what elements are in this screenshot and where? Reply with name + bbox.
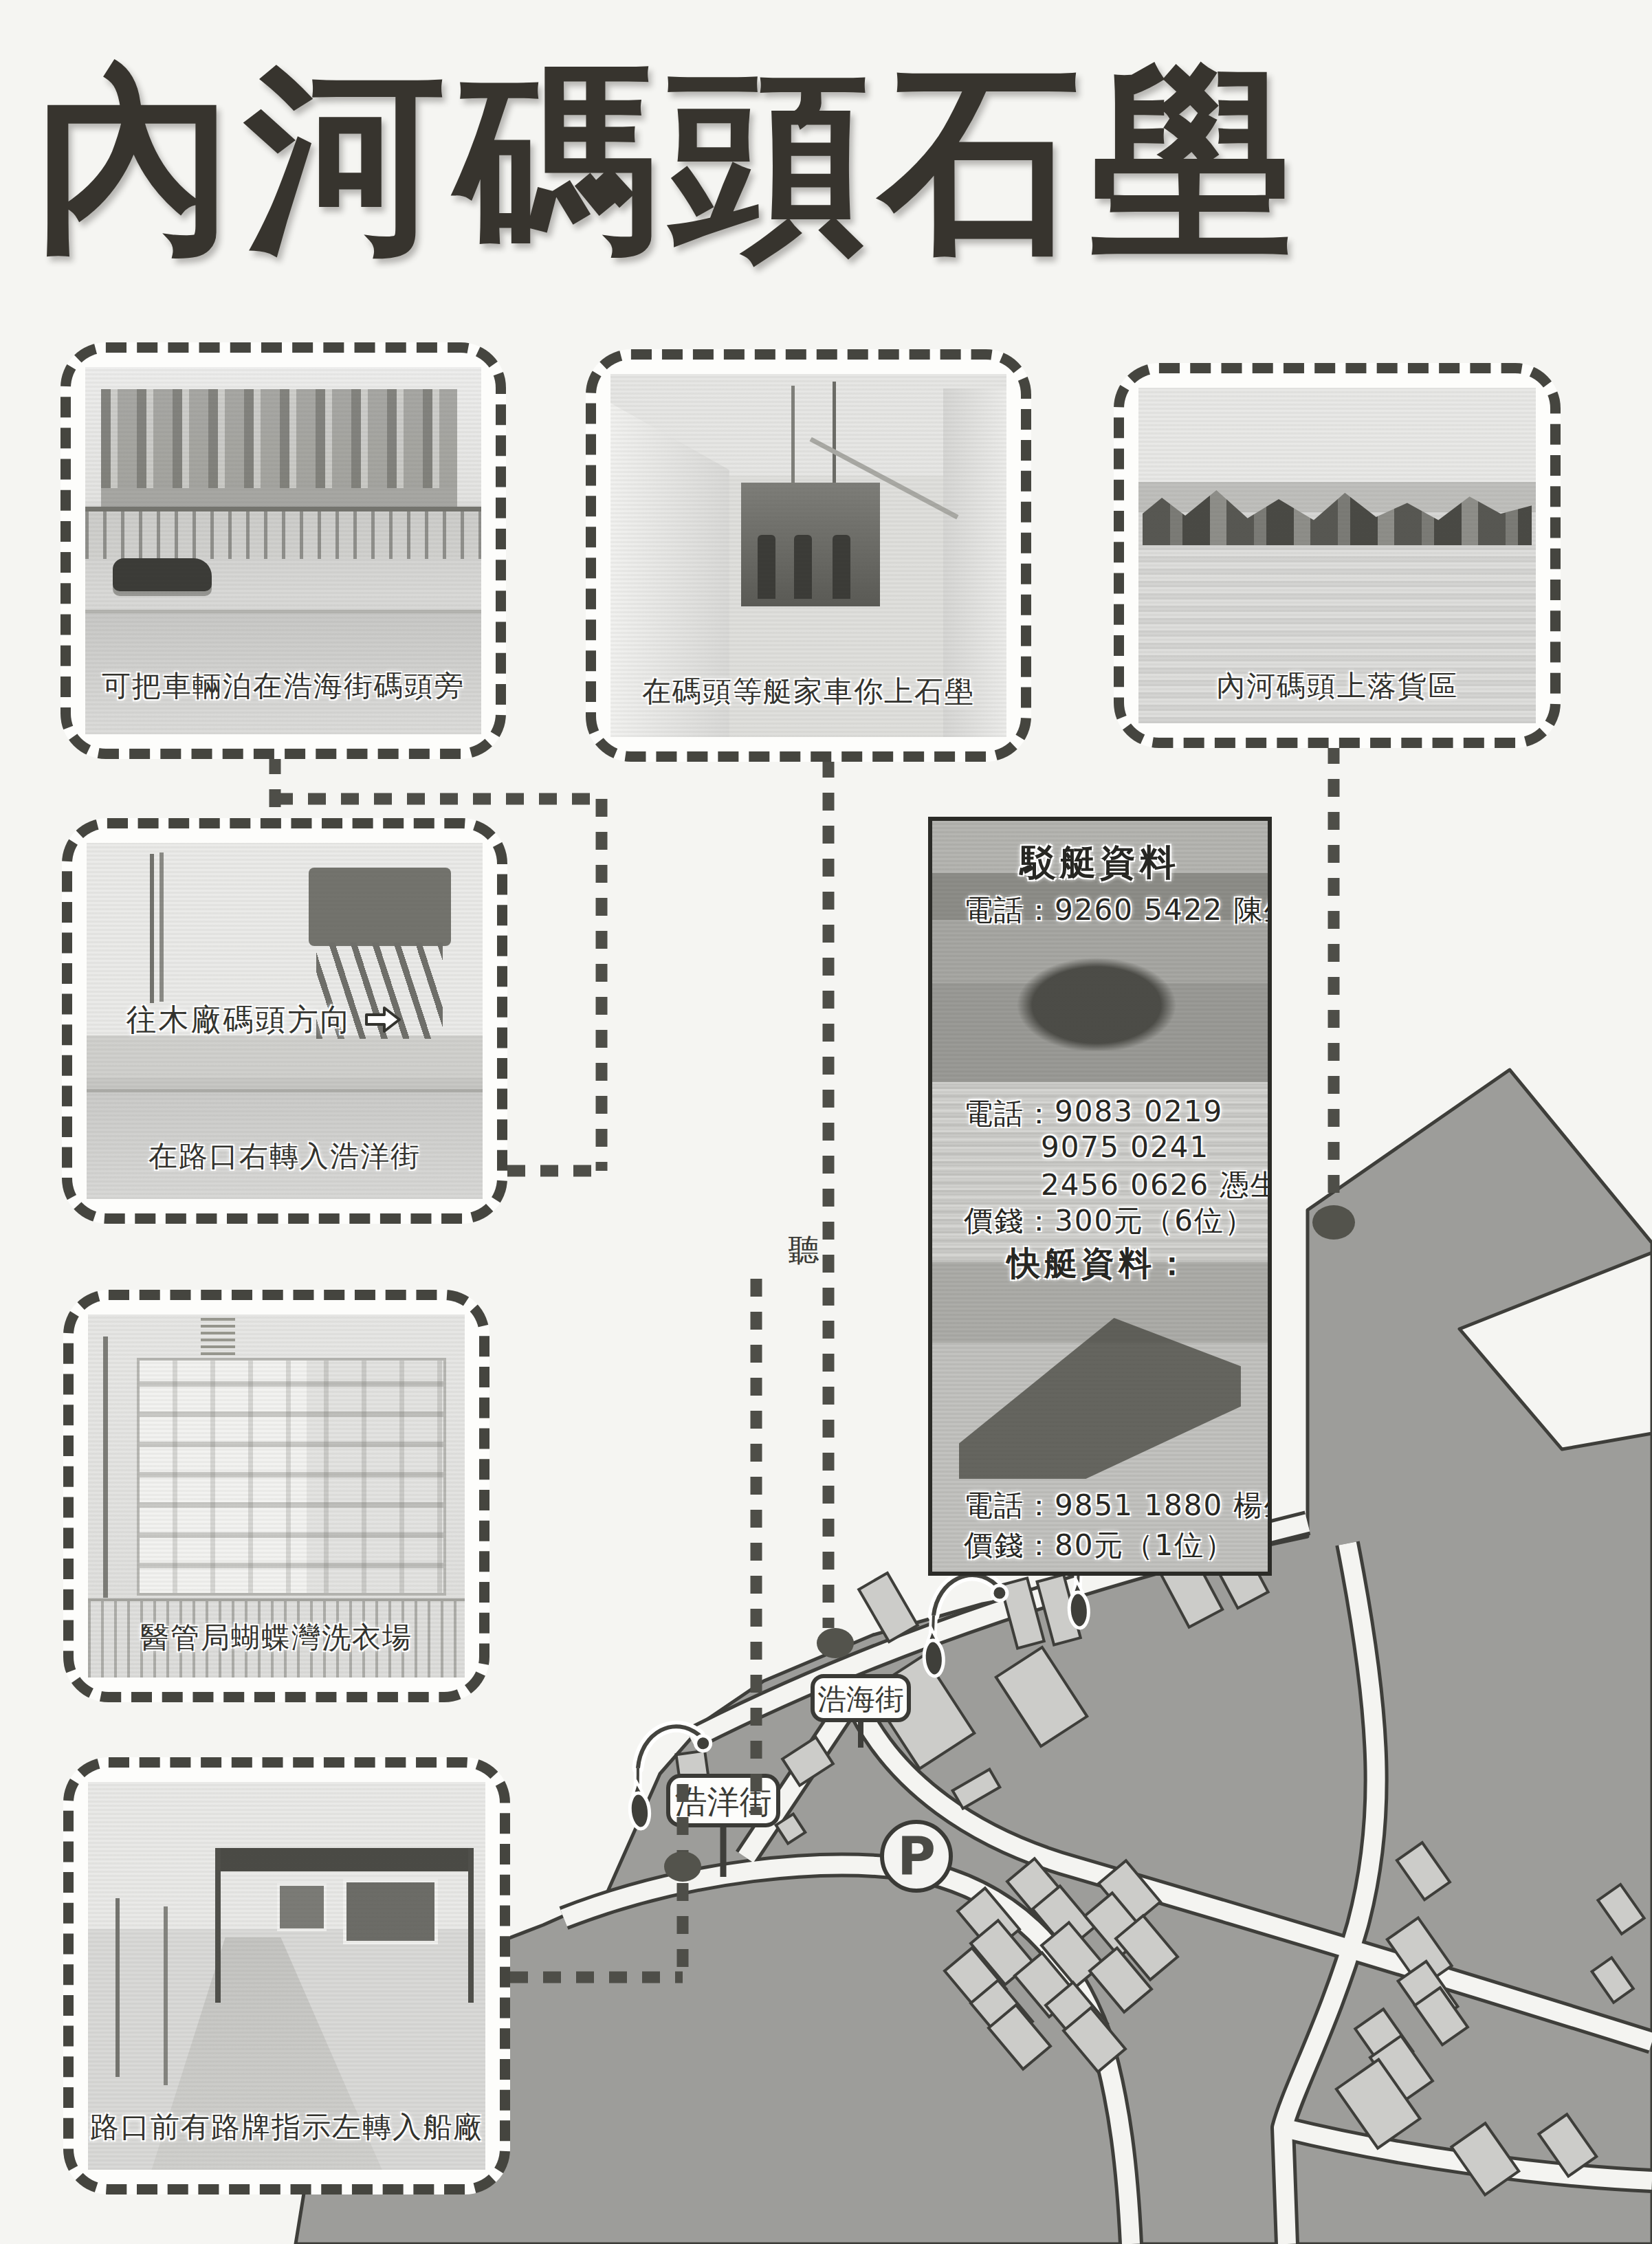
parking-symbol: P bbox=[882, 1822, 951, 1891]
phone-value: 2456 0626 憑生 bbox=[1041, 1166, 1272, 1204]
boat-info-panel: 駁艇資料 電話： 9260 5422 陳生 電話： 9083 0219 9075… bbox=[928, 817, 1272, 1576]
phone-label: 電話： bbox=[964, 1094, 1055, 1133]
phone-value: 9075 0241 bbox=[1041, 1130, 1209, 1164]
photo-caption: 可把車輛泊在浩海街碼頭旁 bbox=[85, 667, 481, 705]
person-silhouette bbox=[794, 535, 812, 599]
barge-phone-line-1: 電話： 9260 5422 陳生 bbox=[932, 891, 1268, 929]
price-label: 價錢： bbox=[964, 1202, 1055, 1240]
phone-value: 9083 0219 bbox=[1055, 1094, 1223, 1133]
road-sign bbox=[277, 1883, 327, 1931]
industrial-silhouette bbox=[101, 389, 457, 507]
leaflet-page: 內河碼頭石壆 bbox=[0, 0, 1652, 2244]
speedboat-phone-line: 電話： 9851 1880 楊生 bbox=[932, 1486, 1268, 1525]
speedboat-info-title: 快艇資料： bbox=[932, 1242, 1268, 1286]
phone-value: 9260 5422 陳生 bbox=[1055, 891, 1272, 929]
speedboat-price-line: 價錢： 80元（1位） bbox=[932, 1526, 1268, 1565]
sign-gantry bbox=[215, 1848, 474, 1871]
photo-frame-parking: 可把車輛泊在浩海街碼頭旁 bbox=[60, 342, 506, 759]
lamp-post bbox=[150, 854, 154, 1004]
phone-label: 電話： bbox=[964, 891, 1055, 929]
photo-junction: 往木廠碼頭方向 在路口右轉入浩洋街 bbox=[87, 843, 483, 1199]
photo-caption: 在碼頭等艇家車你上石壆 bbox=[610, 672, 1006, 711]
barge-info-title: 駁艇資料 bbox=[932, 839, 1268, 887]
lattice-mast bbox=[201, 1318, 234, 1361]
road-sign bbox=[343, 1879, 437, 1944]
barge-phone-line-3: 9075 0241 bbox=[932, 1130, 1268, 1164]
photo-frame-shipyard: 路口前有路牌指示左轉入船廠 bbox=[63, 1757, 510, 2194]
barge-phone-line-4: 2456 0626 憑生 bbox=[932, 1166, 1268, 1204]
photo-frame-cargo: 內河碼頭上落貨區 bbox=[1114, 363, 1561, 748]
street-label: 浩洋街 bbox=[675, 1783, 772, 1820]
person-silhouette bbox=[833, 535, 850, 599]
barge-silhouette bbox=[986, 931, 1207, 1051]
photo-frame-laundry: 醫管局蝴蝶灣洗衣場 bbox=[63, 1290, 489, 1702]
photo-caption: 在路口右轉入浩洋街 bbox=[87, 1137, 483, 1176]
boats-silhouette bbox=[1143, 485, 1532, 549]
photo-frame-pier: 在碼頭等艇家車你上石壆 bbox=[586, 349, 1031, 762]
photo-caption: 內河碼頭上落貨區 bbox=[1138, 667, 1536, 705]
lamp-post bbox=[115, 1898, 120, 2076]
direction-overlay: 往木廠碼頭方向 bbox=[126, 1000, 401, 1040]
photo-parking-street: 可把車輛泊在浩海街碼頭旁 bbox=[85, 367, 481, 734]
street-label: 浩海街 bbox=[817, 1682, 904, 1716]
crane-mast bbox=[833, 382, 836, 490]
photo-cargo-area: 內河碼頭上落貨區 bbox=[1138, 388, 1536, 723]
photo-shipyard-road: 路口前有路牌指示左轉入船廠 bbox=[88, 1782, 485, 2170]
panel-photo-speedboat bbox=[932, 1262, 1268, 1572]
gantry-leg bbox=[215, 1848, 221, 2003]
gantry-leg bbox=[468, 1848, 474, 2003]
photo-caption: 路口前有路牌指示左轉入船廠 bbox=[88, 2108, 485, 2146]
page-title: 內河碼頭石壆 bbox=[33, 27, 1545, 298]
price-label: 價錢： bbox=[964, 1526, 1055, 1565]
photo-caption: 醫管局蝴蝶灣洗衣場 bbox=[88, 1618, 465, 1657]
lamp-post bbox=[103, 1336, 108, 1598]
barge-phone-line-2: 電話： 9083 0219 bbox=[932, 1094, 1268, 1133]
phone-label: 電話： bbox=[964, 1486, 1055, 1525]
photo-laundry-building: 醫管局蝴蝶灣洗衣場 bbox=[88, 1314, 465, 1677]
price-value: 80元（1位） bbox=[1055, 1526, 1235, 1565]
parking-letter: P bbox=[897, 1825, 936, 1886]
direction-text: 往木廠碼頭方向 bbox=[126, 1000, 353, 1040]
speedboat-silhouette bbox=[959, 1318, 1241, 1479]
phone-value: 9851 1880 楊生 bbox=[1055, 1486, 1272, 1525]
ramp-opening bbox=[741, 483, 880, 606]
photo-pier-ramp: 在碼頭等艇家車你上石壆 bbox=[610, 374, 1006, 737]
right-arrow-icon bbox=[365, 1006, 401, 1033]
fence bbox=[85, 507, 481, 559]
barge-price-line: 價錢： 300元（6位） bbox=[932, 1202, 1268, 1240]
plant-silo bbox=[309, 868, 451, 946]
stray-character: 聽 bbox=[788, 1229, 819, 1272]
person-silhouette bbox=[758, 535, 775, 599]
parked-car bbox=[113, 558, 212, 591]
photo-frame-junction: 往木廠碼頭方向 在路口右轉入浩洋街 bbox=[62, 818, 507, 1224]
price-value: 300元（6位） bbox=[1055, 1202, 1255, 1240]
building-facade bbox=[137, 1358, 445, 1596]
